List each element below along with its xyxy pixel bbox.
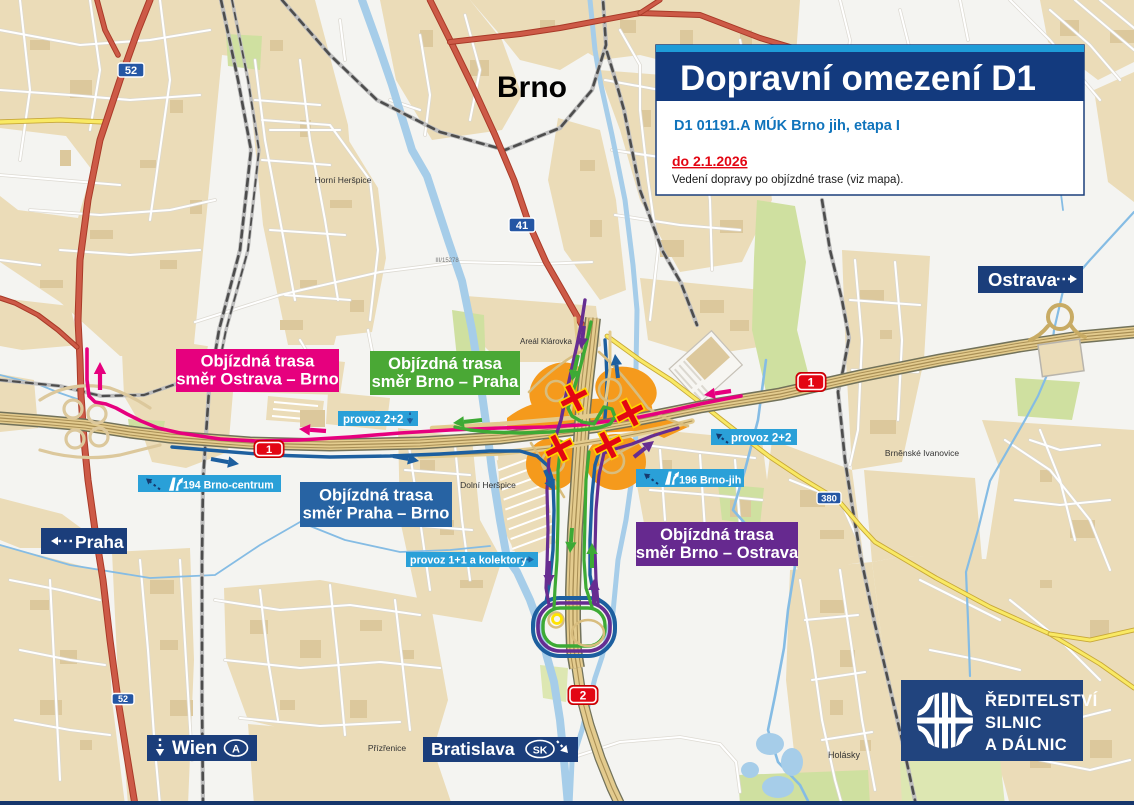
svg-text:196 Brno-jih: 196 Brno-jih xyxy=(679,475,741,487)
svg-text:Holásky: Holásky xyxy=(828,750,861,760)
svg-text:Vedení dopravy po objízdné tra: Vedení dopravy po objízdné trase (viz ma… xyxy=(672,174,903,186)
svg-text:41: 41 xyxy=(516,220,528,232)
svg-text:do 2.1.2026: do 2.1.2026 xyxy=(672,153,748,169)
svg-text:směr Praha – Brno: směr Praha – Brno xyxy=(303,505,450,523)
svg-text:Dopravní omezení D1: Dopravní omezení D1 xyxy=(680,59,1036,98)
svg-text:Bratislava: Bratislava xyxy=(431,739,515,759)
svg-text:Přízřenice: Přízřenice xyxy=(368,743,407,753)
svg-text:Brno: Brno xyxy=(497,71,567,104)
svg-text:1: 1 xyxy=(808,375,815,389)
svg-text:Objízdná trasa: Objízdná trasa xyxy=(660,526,775,544)
svg-text:III/15278: III/15278 xyxy=(435,258,459,264)
svg-text:Objízdná trasa: Objízdná trasa xyxy=(388,355,503,373)
svg-text:Objízdná trasa: Objízdná trasa xyxy=(201,353,316,371)
svg-text:Praha: Praha xyxy=(75,532,124,552)
svg-text:SK: SK xyxy=(533,745,548,757)
svg-text:směr Ostrava – Brno: směr Ostrava – Brno xyxy=(176,371,338,389)
svg-text:52: 52 xyxy=(125,65,137,77)
svg-text:A DÁLNIC: A DÁLNIC xyxy=(985,735,1067,754)
svg-text:Areál Klárovka: Areál Klárovka xyxy=(520,337,573,346)
svg-text:směr Brno – Praha: směr Brno – Praha xyxy=(372,373,520,391)
svg-text:Ostrava: Ostrava xyxy=(988,269,1058,290)
svg-text:1: 1 xyxy=(266,444,272,456)
svg-text:provoz 2+2: provoz 2+2 xyxy=(731,433,791,445)
svg-text:Objízdná trasa: Objízdná trasa xyxy=(319,487,434,505)
svg-text:Brněnské Ivanovice: Brněnské Ivanovice xyxy=(885,448,959,458)
svg-text:194 Brno-centrum: 194 Brno-centrum xyxy=(183,480,274,492)
svg-text:provoz 2+2: provoz 2+2 xyxy=(343,414,403,426)
svg-text:směr Brno – Ostrava: směr Brno – Ostrava xyxy=(636,544,799,562)
svg-text:Wien: Wien xyxy=(172,738,217,759)
svg-text:52: 52 xyxy=(118,694,128,704)
svg-text:380: 380 xyxy=(821,493,837,504)
svg-text:A: A xyxy=(232,744,240,756)
svg-text:Dolní Heršpice: Dolní Heršpice xyxy=(460,480,516,490)
svg-text:provoz 1+1 a kolektory: provoz 1+1 a kolektory xyxy=(410,555,527,567)
svg-text:2: 2 xyxy=(580,688,587,702)
svg-text:D1 01191.A MÚK Brno jih, etapa: D1 01191.A MÚK Brno jih, etapa I xyxy=(674,116,900,134)
svg-text:ŘEDITELSTVÍ: ŘEDITELSTVÍ xyxy=(985,691,1098,710)
svg-text:Horní Heršpice: Horní Heršpice xyxy=(315,175,372,185)
svg-text:SILNIC: SILNIC xyxy=(985,714,1042,732)
